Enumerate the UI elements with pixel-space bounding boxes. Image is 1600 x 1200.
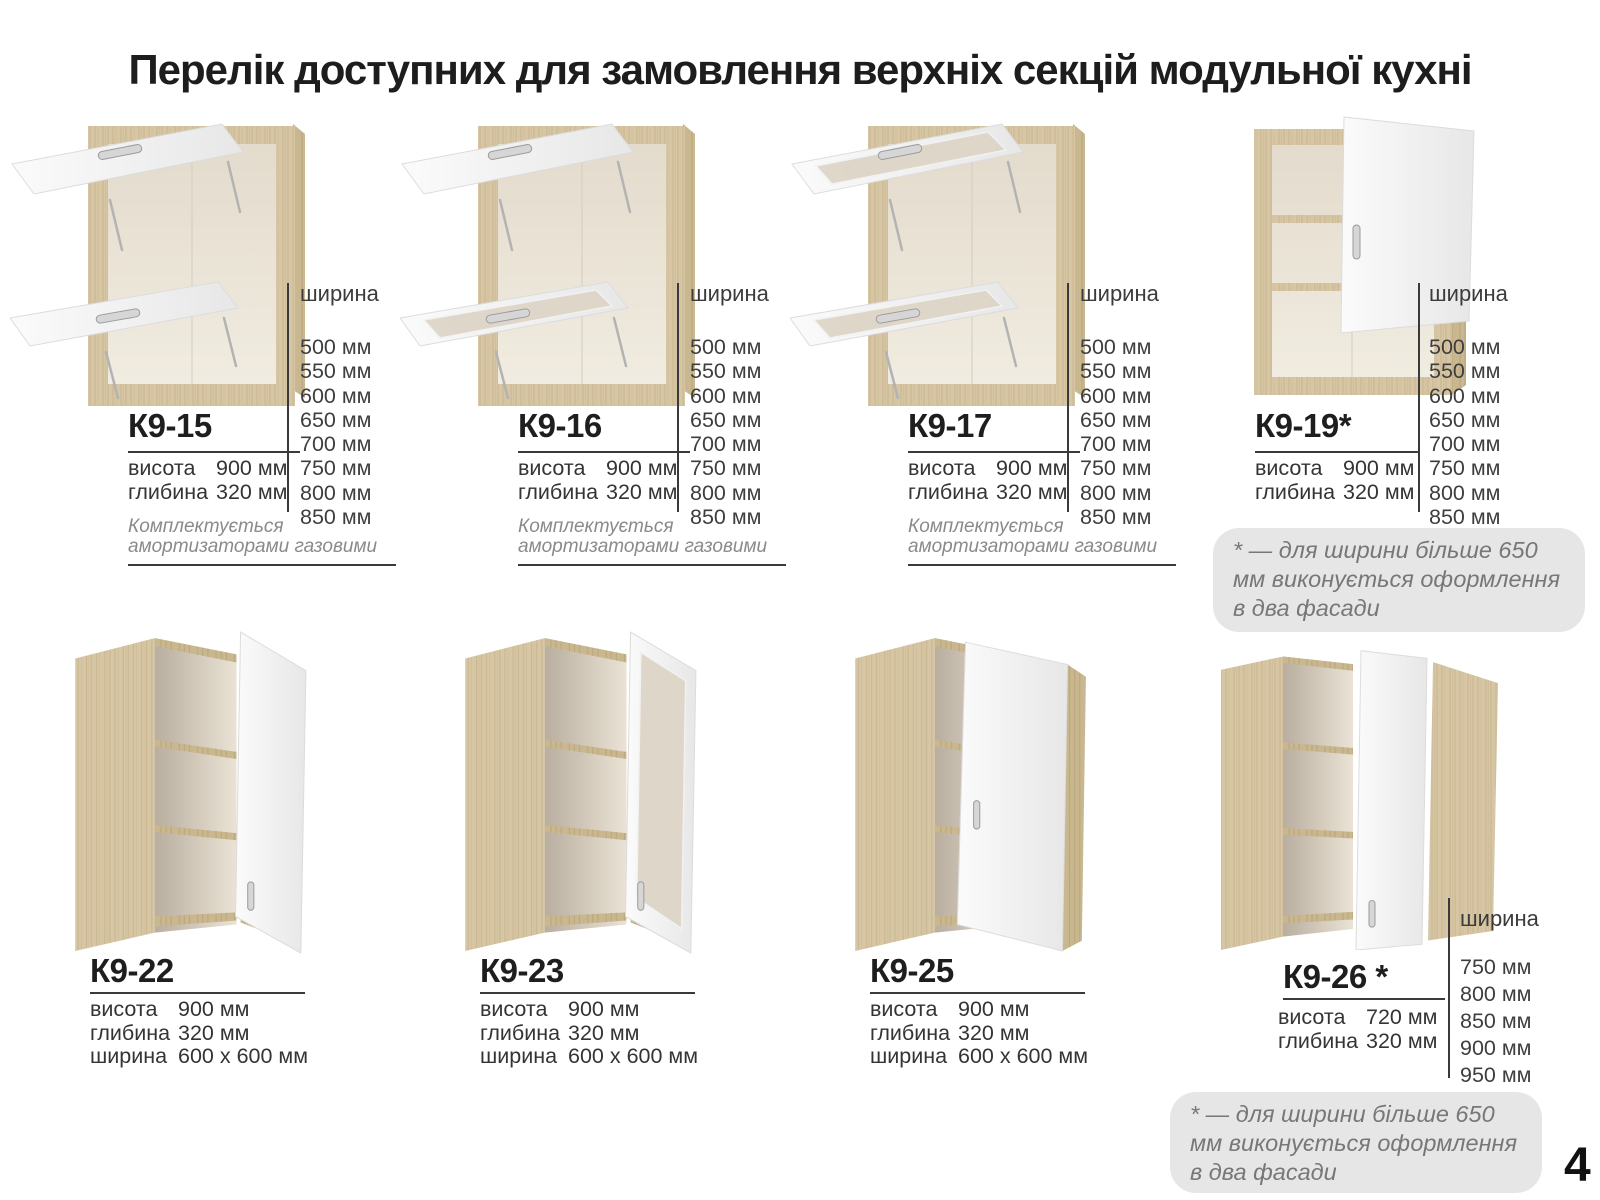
spec-label-height: висота — [1278, 1006, 1366, 1030]
spec-value-width: 600 x 600 мм — [178, 1044, 308, 1068]
spec-list: висота900 мм глибина320 мм ширина600 x 6… — [870, 998, 1088, 1069]
spec-label-height: висота — [518, 457, 606, 481]
model-underline — [480, 992, 695, 994]
model-name: К9-16 — [518, 407, 602, 445]
spec-label-height: висота — [908, 457, 996, 481]
cabinet-illustration-k9-23 — [455, 630, 700, 955]
spec-value-depth: 320 мм — [996, 480, 1067, 504]
cabinet-illustration-k9-16 — [400, 120, 695, 445]
width-option: 900 мм — [1460, 1035, 1531, 1062]
width-option: 650 мм — [690, 408, 761, 432]
width-options-list: 500 мм550 мм600 мм650 мм700 мм750 мм800 … — [690, 335, 761, 529]
width-option: 550 мм — [690, 359, 761, 383]
width-option: 800 мм — [690, 481, 761, 505]
spec-label-width: ширина — [870, 1045, 958, 1069]
width-option: 850 мм — [1429, 505, 1500, 529]
width-divider-line — [1448, 898, 1450, 1078]
spec-list: висота900 мм глибина320 мм — [128, 457, 287, 504]
spec-list: висота900 мм глибина320 мм — [908, 457, 1067, 504]
model-name: К9-15 — [128, 407, 212, 445]
spec-label-depth: глибина — [1278, 1030, 1366, 1054]
width-options-list: 750 мм800 мм850 мм900 мм950 мм — [1460, 954, 1531, 1089]
gas-note: Комплектується амортизаторами газовими — [128, 517, 396, 566]
spec-value-depth: 320 мм — [216, 480, 287, 504]
page-number: 4 — [1564, 1138, 1591, 1193]
model-underline — [518, 451, 690, 453]
spec-label-width: ширина — [480, 1045, 568, 1069]
cabinet-illustration-k9-26 — [1213, 645, 1505, 950]
spec-label-depth: глибина — [480, 1022, 568, 1046]
spec-row-height: висота900 мм — [90, 998, 308, 1022]
width-option: 650 мм — [1080, 408, 1151, 432]
width-option: 600 мм — [1429, 384, 1500, 408]
spec-value-width: 600 x 600 мм — [568, 1044, 698, 1068]
model-underline — [908, 451, 1080, 453]
spec-label-depth: глибина — [128, 481, 216, 505]
cabinet-illustration-k9-17 — [790, 120, 1085, 445]
width-option: 500 мм — [1429, 335, 1500, 359]
page-title: Перелік доступних для замовлення верхніх… — [0, 46, 1600, 94]
model-underline — [1283, 998, 1445, 1000]
spec-label-width: ширина — [90, 1045, 178, 1069]
spec-list: висота900 мм глибина320 мм ширина600 x 6… — [480, 998, 698, 1069]
asterisk-note-bottom: * — для ширини більше 650 мм виконується… — [1170, 1092, 1542, 1193]
width-option: 500 мм — [690, 335, 761, 359]
product-card-k9-17: ширина 500 мм550 мм600 мм650 мм700 мм750… — [790, 95, 1180, 595]
spec-row-depth: глибина320 мм — [870, 1022, 1088, 1046]
spec-value-height: 900 мм — [1343, 456, 1414, 480]
width-option: 700 мм — [1080, 432, 1151, 456]
spec-row-depth: глибина320 мм — [90, 1022, 308, 1046]
product-card-k9-22: К9-22 висота900 мм глибина320 мм ширина6… — [10, 630, 400, 1100]
spec-row-height: висота900 мм — [518, 457, 677, 481]
width-option: 700 мм — [300, 432, 371, 456]
model-underline — [128, 451, 300, 453]
model-name: К9-26 * — [1283, 958, 1388, 996]
spec-value-depth: 320 мм — [568, 1021, 639, 1045]
spec-value-depth: 320 мм — [1366, 1029, 1437, 1053]
width-option: 550 мм — [1429, 359, 1500, 383]
spec-row-depth: глибина320 мм — [518, 481, 677, 505]
product-card-k9-25: К9-25 висота900 мм глибина320 мм ширина6… — [790, 630, 1180, 1100]
width-option: 500 мм — [300, 335, 371, 359]
spec-list: висота900 мм глибина320 мм — [518, 457, 677, 504]
spec-row-height: висота900 мм — [870, 998, 1088, 1022]
spec-row-depth: глибина320 мм — [128, 481, 287, 505]
width-column-label: ширина — [1429, 281, 1508, 307]
cabinet-illustration-k9-15 — [10, 120, 305, 445]
width-column-label: ширина — [1080, 281, 1159, 307]
width-column-label: ширина — [1460, 906, 1539, 932]
width-option: 700 мм — [690, 432, 761, 456]
width-option: 750 мм — [300, 456, 371, 480]
spec-value-width: 600 x 600 мм — [958, 1044, 1088, 1068]
spec-value-height: 900 мм — [996, 456, 1067, 480]
spec-label-height: висота — [128, 457, 216, 481]
spec-value-depth: 320 мм — [178, 1021, 249, 1045]
spec-row-depth: глибина320 мм — [480, 1022, 698, 1046]
width-option: 850 мм — [1460, 1008, 1531, 1035]
model-name: К9-17 — [908, 407, 992, 445]
width-options-list: 500 мм550 мм600 мм650 мм700 мм750 мм800 … — [300, 335, 371, 529]
spec-label-depth: глибина — [870, 1022, 958, 1046]
width-option: 750 мм — [690, 456, 761, 480]
gas-note: Комплектується амортизаторами газовими — [518, 517, 786, 566]
spec-value-depth: 320 мм — [1343, 480, 1414, 504]
gas-note: Комплектується амортизаторами газовими — [908, 517, 1176, 566]
spec-row-height: висота900 мм — [1255, 457, 1414, 481]
spec-value-height: 900 мм — [568, 997, 639, 1021]
width-option: 650 мм — [300, 408, 371, 432]
spec-label-height: висота — [870, 998, 958, 1022]
asterisk-note-top: * — для ширини більше 650 мм виконується… — [1213, 528, 1585, 632]
spec-row-width: ширина600 x 600 мм — [480, 1045, 698, 1069]
cabinet-illustration-k9-25 — [845, 630, 1090, 955]
model-underline — [1255, 451, 1420, 453]
spec-row-depth: глибина320 мм — [908, 481, 1067, 505]
spec-label-height: висота — [1255, 457, 1343, 481]
spec-value-depth: 320 мм — [606, 480, 677, 504]
width-options-list: 500 мм550 мм600 мм650 мм700 мм750 мм800 … — [1429, 335, 1500, 529]
width-option: 950 мм — [1460, 1062, 1531, 1089]
spec-row-width: ширина600 x 600 мм — [870, 1045, 1088, 1069]
spec-label-height: висота — [480, 998, 568, 1022]
spec-row-height: висота900 мм — [128, 457, 287, 481]
width-divider-line — [1418, 283, 1420, 512]
spec-row-width: ширина600 x 600 мм — [90, 1045, 308, 1069]
width-column-label: ширина — [690, 281, 769, 307]
product-card-k9-23: К9-23 висота900 мм глибина320 мм ширина6… — [400, 630, 790, 1100]
width-option: 750 мм — [1080, 456, 1151, 480]
width-option: 800 мм — [1429, 481, 1500, 505]
width-option: 550 мм — [1080, 359, 1151, 383]
width-option: 750 мм — [1460, 954, 1531, 981]
spec-value-height: 720 мм — [1366, 1005, 1437, 1029]
spec-list: висота720 мм глибина320 мм — [1278, 1006, 1437, 1053]
spec-value-height: 900 мм — [216, 456, 287, 480]
width-column-label: ширина — [300, 281, 379, 307]
spec-label-depth: глибина — [908, 481, 996, 505]
width-option: 800 мм — [1460, 981, 1531, 1008]
spec-value-height: 900 мм — [178, 997, 249, 1021]
product-card-k9-15: ширина 500 мм550 мм600 мм650 мм700 мм750… — [10, 95, 400, 595]
spec-row-height: висота900 мм — [480, 998, 698, 1022]
spec-value-depth: 320 мм — [958, 1021, 1029, 1045]
cabinet-illustration-k9-22 — [65, 630, 310, 955]
width-option: 800 мм — [300, 481, 371, 505]
model-name: К9-22 — [90, 952, 174, 990]
spec-list: висота900 мм глибина320 мм ширина600 x 6… — [90, 998, 308, 1069]
product-card-k9-16: ширина 500 мм550 мм600 мм650 мм700 мм750… — [400, 95, 790, 595]
spec-label-depth: глибина — [518, 481, 606, 505]
width-option: 600 мм — [300, 384, 371, 408]
width-option: 550 мм — [300, 359, 371, 383]
model-underline — [90, 992, 305, 994]
spec-row-depth: глибина320 мм — [1255, 481, 1414, 505]
spec-row-height: висота720 мм — [1278, 1006, 1437, 1030]
model-name: К9-19* — [1255, 407, 1351, 445]
spec-row-depth: глибина320 мм — [1278, 1030, 1437, 1054]
spec-label-height: висота — [90, 998, 178, 1022]
product-card-k9-26: ширина 750 мм800 мм850 мм900 мм950 мм К9… — [1203, 630, 1593, 1100]
width-option: 700 мм — [1429, 432, 1500, 456]
width-options-list: 500 мм550 мм600 мм650 мм700 мм750 мм800 … — [1080, 335, 1151, 529]
width-option: 600 мм — [690, 384, 761, 408]
width-option: 750 мм — [1429, 456, 1500, 480]
model-name: К9-23 — [480, 952, 564, 990]
spec-label-depth: глибина — [1255, 481, 1343, 505]
spec-value-height: 900 мм — [958, 997, 1029, 1021]
product-card-k9-19: ширина 500 мм550 мм600 мм650 мм700 мм750… — [1155, 95, 1545, 595]
width-option: 800 мм — [1080, 481, 1151, 505]
model-name: К9-25 — [870, 952, 954, 990]
width-option: 600 мм — [1080, 384, 1151, 408]
spec-label-depth: глибина — [90, 1022, 178, 1046]
spec-row-height: висота900 мм — [908, 457, 1067, 481]
width-option: 650 мм — [1429, 408, 1500, 432]
model-underline — [870, 992, 1085, 994]
spec-list: висота900 мм глибина320 мм — [1255, 457, 1414, 504]
spec-value-height: 900 мм — [606, 456, 677, 480]
width-option: 500 мм — [1080, 335, 1151, 359]
